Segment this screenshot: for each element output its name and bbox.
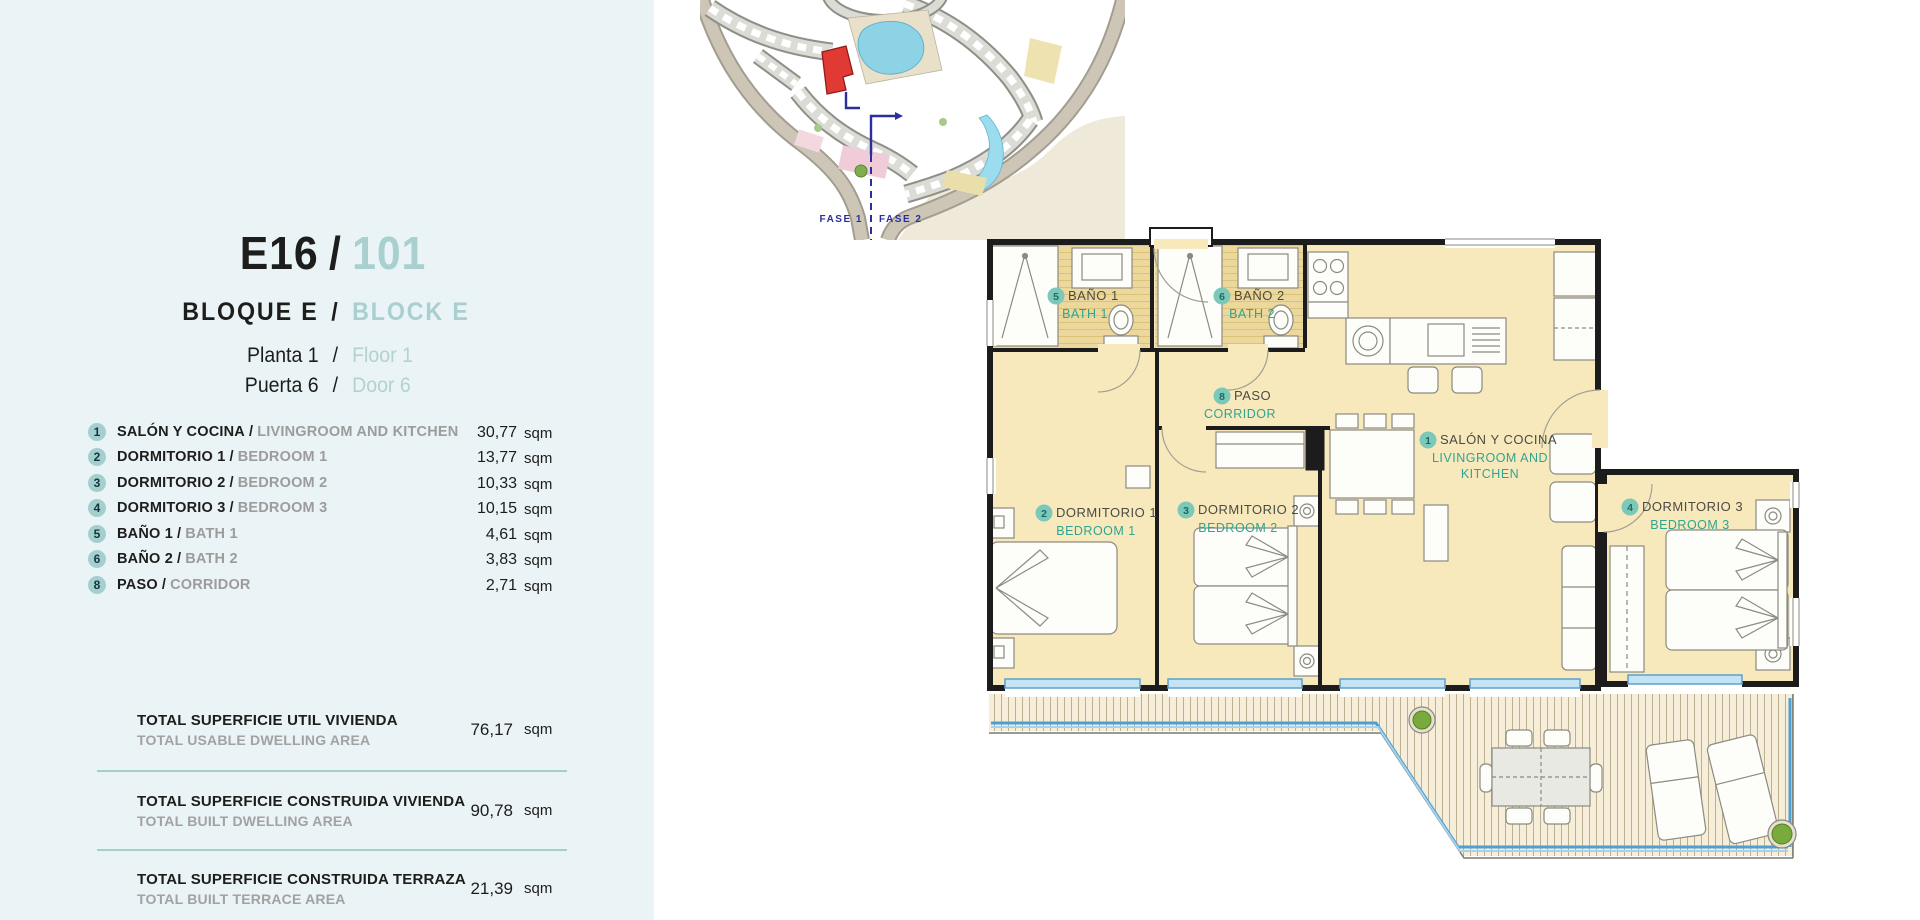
- terrace-glazing: [1005, 675, 1742, 697]
- totals-divider: [97, 849, 567, 851]
- dining-chair: [1392, 414, 1414, 428]
- tree: [855, 165, 867, 177]
- svg-text:SALÓN Y COCINA: SALÓN Y COCINA: [1440, 432, 1557, 447]
- room-slash: /: [245, 424, 257, 440]
- tree: [939, 118, 947, 126]
- room-slash: /: [225, 449, 237, 465]
- fridge: [1554, 252, 1596, 296]
- apartment-floorplan: 5 BAÑO 1 BATH 1 6 BAÑO 2 BATH 2 8 PASO C…: [958, 225, 1820, 885]
- floor-row: Planta 1 / Floor 1: [23, 344, 631, 368]
- route-arrow: [895, 112, 903, 120]
- floor-es: Planta 1: [23, 344, 319, 368]
- svg-text:KITCHEN: KITCHEN: [1461, 467, 1519, 481]
- dining-chair: [1336, 500, 1358, 514]
- terrace-chair: [1544, 808, 1570, 824]
- totals-divider: [97, 770, 567, 772]
- svg-text:BAÑO 1: BAÑO 1: [1068, 288, 1119, 303]
- window-bed1: [984, 458, 996, 494]
- window-kitchen: [1445, 236, 1555, 248]
- block-name-es: BLOQUE E: [23, 298, 319, 327]
- room-name-en: BEDROOM 3: [238, 500, 328, 516]
- building-block-left-small: [758, 56, 796, 84]
- door-row: Puerta 6 / Door 6: [23, 374, 631, 398]
- tall-cabinet: [1554, 298, 1596, 360]
- total-unit: sqm: [524, 880, 552, 897]
- terrace-chair: [1590, 764, 1602, 792]
- room-area-unit: sqm: [524, 527, 552, 544]
- terrace-chair: [1480, 764, 1492, 792]
- total-value: 21,39: [380, 879, 513, 899]
- entrance-door-gap: [1154, 239, 1208, 249]
- svg-text:LIVINGROOM AND: LIVINGROOM AND: [1432, 451, 1548, 465]
- wardrobe: [1126, 466, 1150, 488]
- svg-text:5: 5: [1053, 291, 1059, 303]
- unit-title: E16 / 101: [23, 226, 631, 280]
- terrace-chair: [1544, 730, 1570, 746]
- brochure-page: { "labels": { "sep": "/" }, "header": { …: [0, 0, 1920, 920]
- svg-text:BEDROOM 1: BEDROOM 1: [1056, 524, 1136, 538]
- total-title-en: TOTAL USABLE DWELLING AREA: [137, 732, 370, 748]
- unit-number: 101: [352, 226, 631, 280]
- dining-table: [1330, 430, 1414, 498]
- total-unit: sqm: [524, 802, 552, 819]
- room-name-es: DORMITORIO 3: [117, 500, 225, 516]
- headboard: [1288, 526, 1297, 646]
- svg-text:DORMITORIO 1: DORMITORIO 1: [1056, 505, 1157, 520]
- svg-text:PASO: PASO: [1234, 388, 1271, 403]
- room-badge: 6: [88, 550, 106, 568]
- room-name-en: CORRIDOR: [170, 577, 251, 593]
- room-badge: 4: [88, 499, 106, 517]
- block-name-en: BLOCK E: [352, 298, 631, 327]
- tv-unit: [1424, 505, 1448, 561]
- terrace-chair: [1506, 730, 1532, 746]
- hob: [1308, 252, 1348, 302]
- wall-stub: [1306, 428, 1324, 470]
- fase1-label: FASE 1: [820, 214, 863, 225]
- room-area-unit: sqm: [524, 450, 552, 467]
- room-area-value: 4,61: [380, 526, 517, 544]
- bed-2-lower: [1194, 586, 1296, 644]
- room-slash: /: [225, 500, 237, 516]
- door-gap-bed3: [1598, 484, 1612, 532]
- room-name-en: BEDROOM 2: [238, 475, 328, 491]
- highlighted-unit-marker: [822, 46, 853, 94]
- door-gap-living: [1592, 390, 1608, 448]
- dining-chair: [1336, 414, 1358, 428]
- sand-patch-right: [1024, 38, 1062, 84]
- room-area-value: 10,33: [380, 475, 517, 493]
- room-name-es: PASO: [117, 577, 158, 593]
- room-name-en: BEDROOM 1: [238, 449, 328, 465]
- total-value: 76,17: [380, 720, 513, 740]
- room-slash: /: [173, 551, 185, 567]
- svg-text:1: 1: [1425, 435, 1431, 447]
- total-value: 90,78: [380, 801, 513, 821]
- total-unit: sqm: [524, 721, 552, 738]
- terrace-chair: [1506, 808, 1532, 824]
- main-pool: [858, 21, 924, 74]
- door-es: Puerta 6: [23, 374, 319, 398]
- room-row-bed1: 2 DORMITORIO 1/BEDROOM 1 13,77 sqm: [0, 448, 654, 468]
- room-badge: 5: [88, 525, 106, 543]
- total-title-en: TOTAL BUILT TERRACE AREA: [137, 891, 346, 907]
- kitchen-island: [1390, 318, 1506, 364]
- total-title-en: TOTAL BUILT DWELLING AREA: [137, 813, 353, 829]
- nightstand: [1294, 646, 1320, 676]
- room-name-es: BAÑO 2: [117, 551, 173, 567]
- room-row-bed3: 4 DORMITORIO 3/BEDROOM 3 10,15 sqm: [0, 499, 654, 519]
- room-name-en: BATH 1: [185, 526, 238, 542]
- room-name-es: DORMITORIO 2: [117, 475, 225, 491]
- unit-title-slash: /: [319, 226, 352, 280]
- room-area-unit: sqm: [524, 578, 552, 595]
- svg-text:8: 8: [1219, 391, 1225, 403]
- svg-text:BATH 2: BATH 2: [1229, 307, 1275, 321]
- door-gap-bath2: [1228, 344, 1268, 356]
- dining-chair: [1392, 500, 1414, 514]
- room-name-es: BAÑO 1: [117, 526, 173, 542]
- room-slash: /: [225, 475, 237, 491]
- svg-text:BATH 1: BATH 1: [1062, 307, 1108, 321]
- closet: [1216, 432, 1304, 468]
- kitchen-counter: [1308, 302, 1348, 318]
- svg-text:DORMITORIO 2: DORMITORIO 2: [1198, 502, 1299, 517]
- floor-slash: /: [319, 344, 352, 368]
- bed-2-upper: [1194, 528, 1296, 586]
- room-row-living: 1 SALÓN Y COCINA/LIVINGROOM AND KITCHEN …: [0, 423, 654, 443]
- door-gap-bed2: [1162, 422, 1206, 434]
- room-area-value: 10,15: [380, 500, 517, 518]
- dining-chair: [1364, 414, 1386, 428]
- svg-text:CORRIDOR: CORRIDOR: [1204, 407, 1276, 421]
- dining-chair: [1364, 500, 1386, 514]
- svg-text:BEDROOM 3: BEDROOM 3: [1650, 518, 1730, 532]
- svg-text:6: 6: [1219, 291, 1225, 303]
- fase2-label: FASE 2: [879, 214, 922, 225]
- terrace-plant: [1768, 820, 1796, 848]
- door-gap-bath1: [1098, 344, 1140, 356]
- window-bath1: [984, 300, 996, 346]
- room-area-unit: sqm: [524, 552, 552, 569]
- headboard: [1778, 532, 1787, 648]
- toilet-1: [1109, 305, 1133, 335]
- room-name-es: SALÓN Y COCINA: [117, 424, 245, 440]
- armchair: [1550, 482, 1596, 522]
- room-badge: 1: [88, 423, 106, 441]
- sofa: [1562, 546, 1596, 670]
- tree: [814, 124, 822, 132]
- bed-1: [990, 542, 1117, 634]
- room-badge: 2: [88, 448, 106, 466]
- bar-stool: [1408, 367, 1438, 393]
- door-en: Door 6: [352, 374, 631, 398]
- room-area-value: 30,77: [380, 424, 517, 442]
- room-row-bath2: 6 BAÑO 2/BATH 2 3,83 sqm: [0, 550, 654, 570]
- room-row-bed2: 3 DORMITORIO 2/BEDROOM 2 10,33 sqm: [0, 474, 654, 494]
- svg-text:BAÑO 2: BAÑO 2: [1234, 288, 1285, 303]
- nightstand: [1756, 500, 1790, 532]
- shower-2: [1158, 246, 1222, 346]
- terrace: [989, 694, 1796, 858]
- window-bed3: [1790, 482, 1802, 508]
- svg-text:3: 3: [1183, 505, 1189, 517]
- room-name-en: BATH 2: [185, 551, 238, 567]
- block-row: BLOQUE E / BLOCK E: [23, 298, 631, 327]
- room-row-bath1: 5 BAÑO 1/BATH 1 4,61 sqm: [0, 525, 654, 545]
- svg-text:DORMITORIO 3: DORMITORIO 3: [1642, 499, 1743, 514]
- room-badge: 8: [88, 576, 106, 594]
- room-area-value: 2,71: [380, 577, 517, 595]
- bar-stool: [1452, 367, 1482, 393]
- svg-text:2: 2: [1041, 508, 1047, 520]
- info-sidebar: E16 / 101 BLOQUE E / BLOCK E Planta 1 / …: [0, 0, 654, 920]
- svg-text:4: 4: [1627, 502, 1633, 514]
- room-area-unit: sqm: [524, 476, 552, 493]
- room-name-es: DORMITORIO 1: [117, 449, 225, 465]
- bed-3-upper: [1666, 530, 1788, 590]
- block-slash: /: [319, 298, 352, 327]
- unit-code: E16: [23, 226, 319, 280]
- svg-text:BEDROOM 2: BEDROOM 2: [1198, 521, 1278, 535]
- door-slash: /: [319, 374, 352, 398]
- floor-en: Floor 1: [352, 344, 631, 368]
- room-slash: /: [173, 526, 185, 542]
- room-area-unit: sqm: [524, 501, 552, 518]
- total-title-es: TOTAL SUPERFICIE UTIL VIVIENDA: [137, 712, 398, 729]
- site-masterplan: FASE 1 FASE 2: [700, 0, 1125, 240]
- room-slash: /: [158, 577, 170, 593]
- room-area-unit: sqm: [524, 425, 552, 442]
- toilet-2-tank: [1264, 336, 1298, 348]
- window-bed3: [1790, 598, 1802, 646]
- terrace-plant: [1409, 707, 1435, 733]
- room-row-corridor: 8 PASO/CORRIDOR 2,71 sqm: [0, 576, 654, 596]
- room-area-value: 13,77: [380, 449, 517, 467]
- room-area-value: 3,83: [380, 551, 517, 569]
- room-badge: 3: [88, 474, 106, 492]
